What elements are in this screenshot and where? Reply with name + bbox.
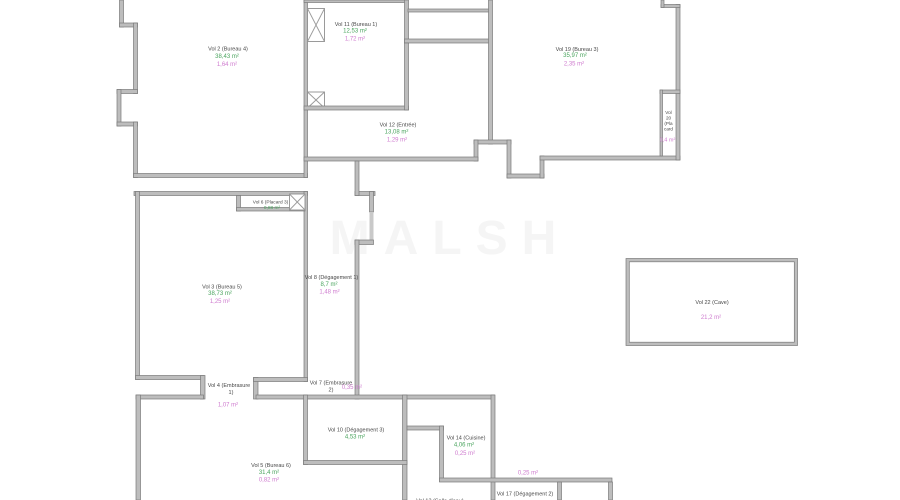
svg-text:0,35 m²: 0,35 m² — [342, 385, 362, 391]
svg-text:12,53 m²: 12,53 m² — [343, 29, 367, 35]
svg-text:Vol 2 (Bureau 4): Vol 2 (Bureau 4) — [208, 47, 248, 53]
svg-text:0,88 m²: 0,88 m² — [264, 205, 281, 211]
svg-text:0,25 m²: 0,25 m² — [518, 471, 538, 477]
svg-text:2): 2) — [329, 388, 334, 394]
svg-text:Vol 8 (Dégagement 1): Vol 8 (Dégagement 1) — [305, 275, 359, 281]
svg-text:Vol 12 (Entrée): Vol 12 (Entrée) — [380, 123, 417, 129]
svg-text:Vol 6 (Placard 3): Vol 6 (Placard 3) — [253, 200, 289, 206]
svg-text:31,4 m²: 31,4 m² — [259, 470, 279, 476]
svg-text:card: card — [664, 127, 673, 132]
svg-text:MALSH: MALSH — [330, 212, 571, 265]
svg-text:0,4 m²: 0,4 m² — [660, 138, 676, 144]
svg-text:35,97 m²: 35,97 m² — [563, 53, 587, 59]
svg-text:Vol 10 (Dégagement 3): Vol 10 (Dégagement 3) — [328, 428, 385, 434]
svg-text:8,7 m²: 8,7 m² — [320, 282, 337, 288]
svg-text:(Pla: (Pla — [664, 121, 673, 126]
svg-text:4,06 m²: 4,06 m² — [454, 443, 474, 449]
svg-text:0,25 m²: 0,25 m² — [455, 451, 475, 457]
svg-text:1): 1) — [229, 390, 234, 396]
svg-text:1,07 m²: 1,07 m² — [218, 403, 238, 409]
svg-text:Vol: Vol — [665, 110, 671, 115]
svg-text:13,08 m²: 13,08 m² — [385, 130, 409, 136]
svg-text:Vol 11 (Bureau 1): Vol 11 (Bureau 1) — [335, 22, 378, 28]
svg-text:Vol 17 (Dégagement 2): Vol 17 (Dégagement 2) — [497, 492, 554, 498]
svg-text:1,29 m²: 1,29 m² — [387, 138, 407, 144]
svg-text:21,2 m²: 21,2 m² — [701, 315, 721, 321]
svg-text:1,72 m²: 1,72 m² — [345, 37, 365, 43]
svg-text:Vol 5 (Bureau 6): Vol 5 (Bureau 6) — [251, 463, 291, 469]
svg-text:Vol 14 (Cuisine): Vol 14 (Cuisine) — [447, 436, 486, 442]
svg-text:1,25 m²: 1,25 m² — [210, 299, 230, 305]
svg-text:Vol 22 (Cave): Vol 22 (Cave) — [695, 300, 728, 306]
svg-text:Vol 4 (Embrasure: Vol 4 (Embrasure — [208, 383, 251, 389]
svg-text:4,53 m²: 4,53 m² — [345, 435, 365, 441]
svg-text:2,35 m²: 2,35 m² — [564, 62, 584, 68]
svg-text:38,73 m²: 38,73 m² — [208, 291, 232, 297]
svg-text:20: 20 — [666, 116, 672, 121]
svg-text:Vol 3 (Bureau 5): Vol 3 (Bureau 5) — [202, 285, 242, 291]
svg-text:1,48 m²: 1,48 m² — [319, 290, 339, 296]
svg-text:0,82 m²: 0,82 m² — [259, 478, 279, 484]
svg-text:38,43 m²: 38,43 m² — [215, 54, 239, 60]
svg-text:1,64 m²: 1,64 m² — [217, 62, 237, 68]
